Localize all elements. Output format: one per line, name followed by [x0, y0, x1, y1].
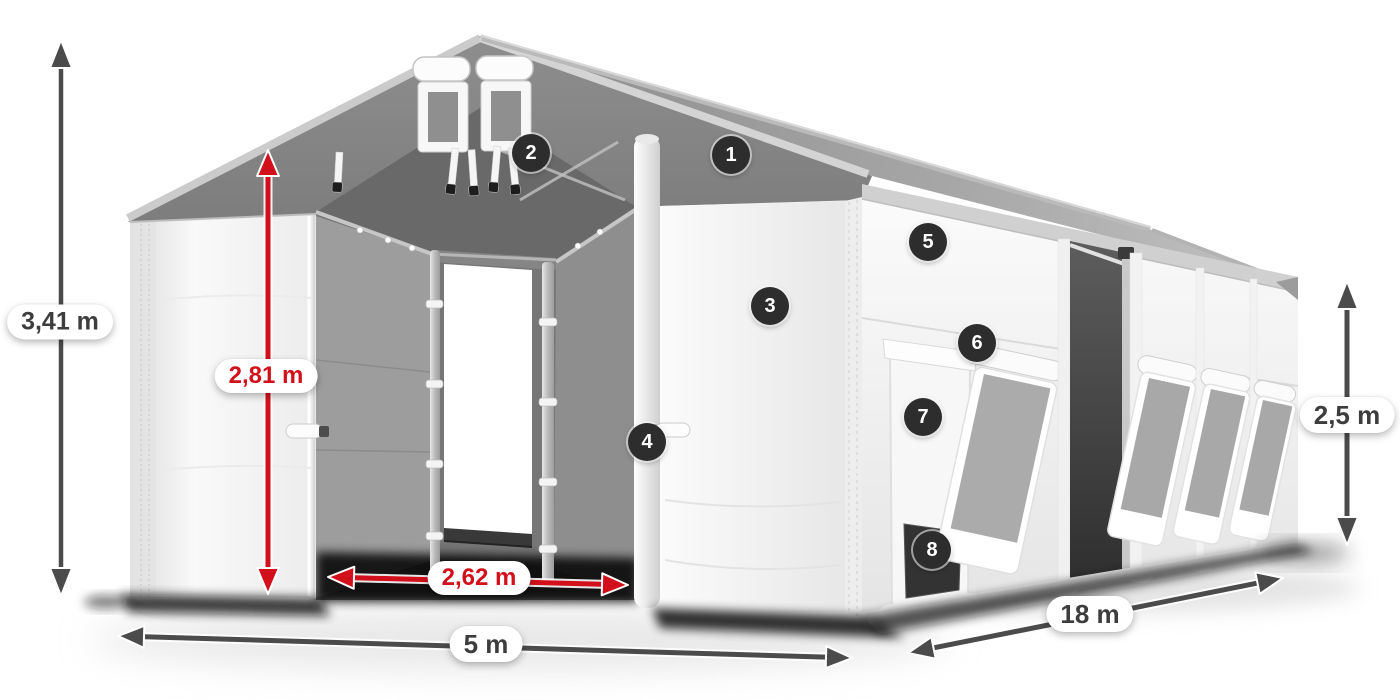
callout-badge-8[interactable]: 8: [913, 531, 951, 569]
left-door-handle: [286, 424, 329, 438]
dim-label-total-height: 3,41 m: [7, 305, 113, 340]
front-right-door: [634, 134, 862, 631]
front-left-wall: [126, 214, 329, 623]
callout-badge-5[interactable]: 5: [909, 223, 947, 261]
tent-illustration: [0, 0, 1400, 700]
callout-badge-4[interactable]: 4: [628, 423, 666, 461]
roof-vent-roller-left: [413, 57, 470, 152]
tent-dimension-diagram: 3,41 m 2,81 m 2,62 m 5 m 18 m 2,5 m 1 2 …: [0, 0, 1400, 700]
callout-badge-6[interactable]: 6: [958, 324, 996, 362]
dim-label-width: 5 m: [450, 626, 523, 662]
callout-badge-3[interactable]: 3: [751, 287, 789, 325]
front-corner-post: [634, 134, 660, 608]
callout-badge-7[interactable]: 7: [904, 398, 942, 436]
callout-badge-1[interactable]: 1: [712, 136, 750, 174]
dim-label-entrance-height: 2,81 m: [215, 359, 318, 393]
dim-label-entrance-width: 2,62 m: [428, 561, 531, 595]
dim-label-side-height: 2,5 m: [1300, 397, 1395, 433]
callout-badge-2[interactable]: 2: [512, 134, 550, 172]
dim-label-length: 18 m: [1046, 596, 1133, 632]
